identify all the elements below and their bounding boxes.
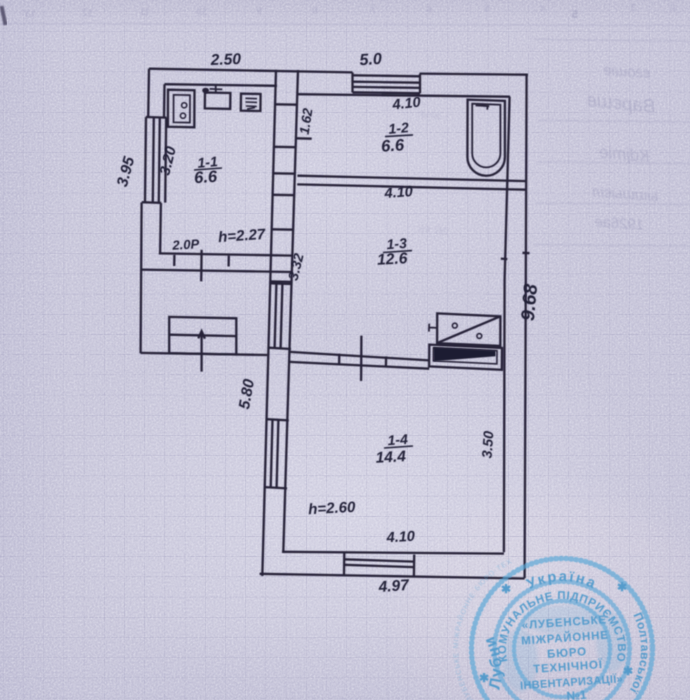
svg-text:1926ае: 1926ае — [594, 214, 645, 234]
svg-text:13: 13 — [24, 9, 36, 20]
svg-text:2: 2 — [670, 3, 676, 14]
svg-text:4.10: 4.10 — [383, 184, 413, 202]
svg-text:12.6: 12.6 — [377, 250, 408, 269]
svg-text:4.97: 4.97 — [377, 577, 411, 596]
svg-text:10: 10 — [195, 7, 207, 18]
svg-text:4.10: 4.10 — [385, 529, 415, 547]
svg-text:9.68: 9.68 — [518, 283, 542, 322]
svg-text:1-2: 1-2 — [388, 119, 410, 137]
svg-text:4: 4 — [540, 4, 546, 15]
svg-text:2.50: 2.50 — [209, 51, 241, 69]
svg-text:3: 3 — [630, 3, 636, 14]
svg-text:№ кв: № кв — [417, 220, 449, 238]
svg-text:6.6: 6.6 — [381, 136, 406, 156]
svg-text:14.4: 14.4 — [375, 448, 406, 467]
svg-text:9: 9 — [256, 6, 262, 17]
svg-text:✱: ✱ — [623, 664, 633, 678]
svg-text:✱: ✱ — [479, 671, 489, 685]
svg-text:4.10: 4.10 — [391, 95, 422, 114]
svg-text:11: 11 — [139, 7, 150, 18]
svg-text:1-4: 1-4 — [387, 431, 409, 448]
svg-text:єгошіе: єгошіе — [603, 62, 651, 82]
svg-text:12: 12 — [81, 8, 93, 19]
svg-text:3.50: 3.50 — [479, 430, 497, 459]
svg-text:h=2.60: h=2.60 — [308, 499, 357, 518]
svg-text:✱: ✱ — [501, 582, 511, 596]
svg-text:6.6: 6.6 — [194, 168, 219, 188]
svg-text:h=2.27: h=2.27 — [218, 226, 267, 246]
svg-text:6: 6 — [426, 5, 432, 16]
svg-text:7: 7 — [370, 5, 376, 16]
svg-text:✱: ✱ — [617, 580, 627, 594]
svg-text:5: 5 — [484, 4, 490, 15]
svg-text:5: 5 — [572, 9, 578, 21]
svg-text:5.0: 5.0 — [359, 51, 382, 70]
svg-text:8: 8 — [312, 6, 318, 17]
svg-text:№1: №1 — [566, 688, 587, 700]
svg-text:2.0Р: 2.0Р — [171, 236, 200, 252]
